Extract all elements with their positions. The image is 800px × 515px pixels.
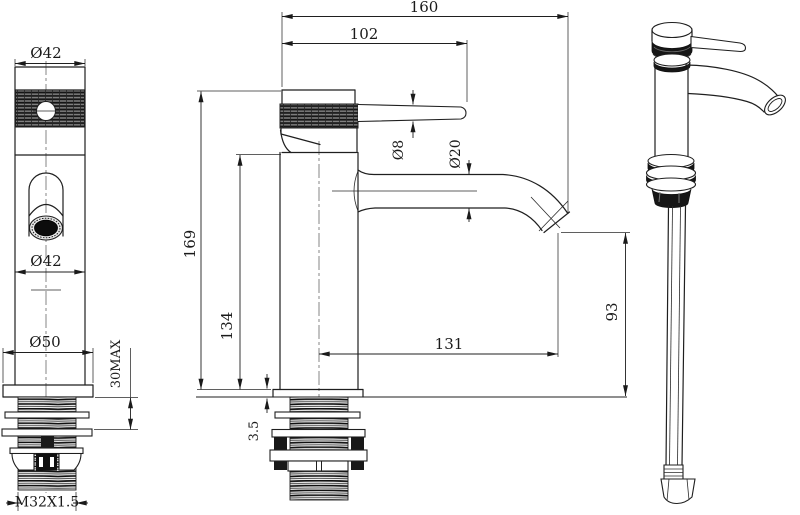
dim-spout-reach-label: 131 — [435, 335, 464, 353]
front-washer-2 — [2, 429, 92, 436]
dim-overall-height-label: 169 — [181, 230, 199, 259]
side-handle-lever — [358, 105, 466, 122]
dim-flange-thickness-label: 3.5 — [247, 421, 262, 442]
side-clamp-plate — [270, 450, 367, 461]
iso-cap-top — [652, 23, 692, 38]
dim-spout-clearance-label: 93 — [603, 302, 621, 321]
side-washer-2 — [272, 430, 365, 438]
faucet-technical-drawing: Ø42 Ø42 Ø50 30MAX — [0, 0, 800, 515]
aerator-opening — [35, 220, 58, 236]
iso-collar-ring — [654, 54, 690, 66]
dim-handle-reach-label: 102 — [350, 25, 379, 43]
dim-thread-spec: M32X1.5 — [6, 492, 88, 511]
dim-base-diameter-label: Ø50 — [29, 333, 60, 351]
drawing-sheet: Ø42 Ø42 Ø50 30MAX — [0, 0, 800, 515]
front-locknut — [10, 448, 83, 471]
dim-cap-diameter-label: Ø42 — [30, 44, 61, 62]
dim-spout-diameter-label: Ø20 — [448, 139, 464, 168]
dim-max-mounting-label: 30MAX — [109, 339, 124, 388]
side-washer-1 — [275, 412, 360, 418]
side-knurl-band — [280, 104, 358, 128]
front-washer-1 — [5, 412, 89, 418]
dim-overall-reach-label: 160 — [410, 0, 439, 16]
side-locknut — [288, 461, 348, 471]
dim-body-height-label: 134 — [218, 312, 236, 341]
dim-thread-spec-label: M32X1.5 — [15, 495, 79, 511]
front-poprod — [41, 436, 54, 449]
dim-handle-rod-diameter-label: Ø8 — [391, 140, 407, 160]
dim-body-diameter-label: Ø42 — [30, 252, 61, 270]
